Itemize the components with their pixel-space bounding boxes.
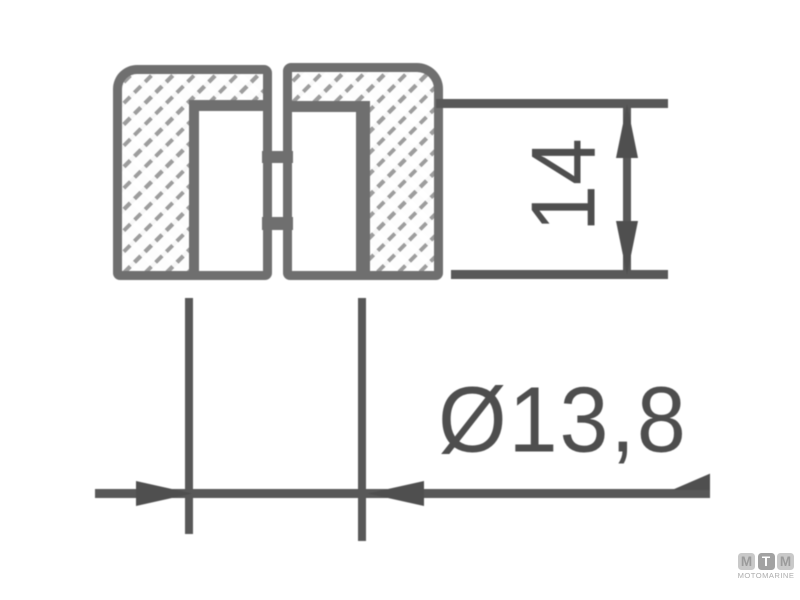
mtm-logo-tiles: M T M (736, 553, 796, 570)
technical-drawing-page: 14 Ø13,8 M T M MOTOMARINE (0, 0, 800, 600)
diameter-arrow-left-icon (368, 481, 424, 506)
height-extension-line-bottom (451, 270, 668, 279)
section-body-right (283, 63, 443, 280)
cross-section-sketch: 14 Ø13,8 (0, 0, 800, 600)
section-body-left (113, 65, 272, 280)
bore-cavity-left (189, 100, 263, 271)
logo-tile-m2: M (777, 553, 794, 570)
dimension-line-end-stroke (672, 471, 710, 490)
height-extension-line-top (436, 99, 668, 108)
height-dimension-label: 14 (493, 120, 633, 250)
center-web-bottom (262, 217, 293, 230)
mtm-watermark: M T M MOTOMARINE (736, 553, 796, 580)
logo-tile-t: T (758, 553, 775, 570)
diameter-extension-line-left (185, 298, 193, 534)
diameter-extension-line-right (358, 298, 366, 541)
watermark-subtitle: MOTOMARINE (736, 571, 796, 580)
bore-cavity-right (292, 101, 370, 271)
center-web-top (262, 151, 293, 163)
logo-tile-m1: M (738, 553, 755, 570)
diameter-dimension-label: Ø13,8 (428, 372, 698, 469)
diameter-arrow-right-icon (136, 481, 192, 506)
